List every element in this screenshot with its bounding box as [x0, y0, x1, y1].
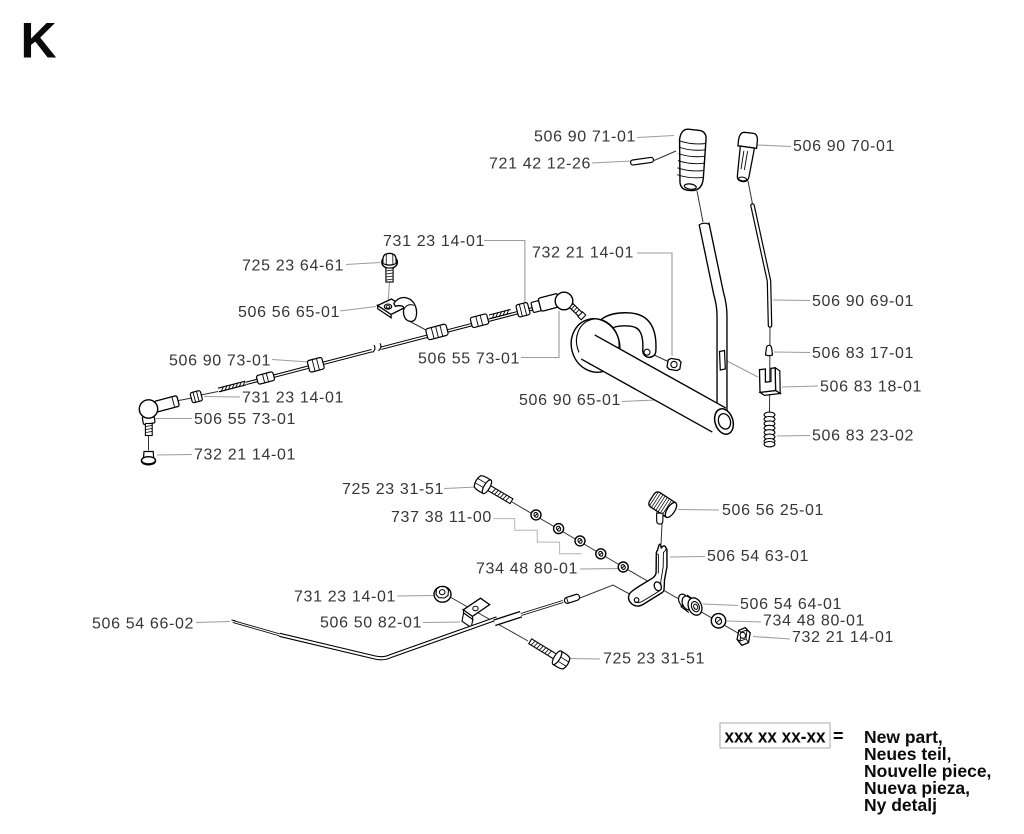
svg-text:725 23 31-51: 725 23 31-51 — [603, 651, 705, 668]
svg-text:xxx xx xx-xx: xxx xx xx-xx — [725, 727, 826, 747]
svg-text:731 23 14-01: 731 23 14-01 — [242, 390, 344, 407]
svg-text:725 23 64-61: 725 23 64-61 — [242, 258, 344, 275]
svg-text:506 55 73-01: 506 55 73-01 — [194, 411, 296, 428]
svg-text:732 21 14-01: 732 21 14-01 — [532, 245, 634, 262]
svg-text:506 90 69-01: 506 90 69-01 — [812, 293, 914, 310]
svg-text:721 42 12-26: 721 42 12-26 — [489, 156, 591, 173]
svg-text:506 54 64-01: 506 54 64-01 — [740, 596, 842, 613]
svg-text:506 90 65-01: 506 90 65-01 — [519, 392, 621, 409]
svg-text:731 23 14-01: 731 23 14-01 — [294, 589, 396, 606]
svg-text:506 90 70-01: 506 90 70-01 — [793, 138, 895, 155]
svg-text:506 54 63-01: 506 54 63-01 — [707, 548, 809, 565]
svg-text:506 83 18-01: 506 83 18-01 — [820, 379, 922, 396]
svg-text:506 90 71-01: 506 90 71-01 — [534, 129, 636, 146]
svg-text:506 56 25-01: 506 56 25-01 — [722, 502, 824, 519]
svg-text:=: = — [833, 726, 844, 746]
svg-text:506 56 65-01: 506 56 65-01 — [238, 304, 340, 321]
svg-text:737 38 11-00: 737 38 11-00 — [391, 509, 492, 526]
svg-text:732 21 14-01: 732 21 14-01 — [792, 629, 894, 646]
svg-text:506 83 23-02: 506 83 23-02 — [812, 428, 914, 445]
svg-text:506 54 66-02: 506 54 66-02 — [92, 616, 194, 633]
svg-text:506 55 73-01: 506 55 73-01 — [418, 351, 520, 368]
svg-text:734 48 80-01: 734 48 80-01 — [763, 613, 865, 630]
svg-text:731 23 14-01: 731 23 14-01 — [383, 233, 485, 250]
svg-text:K: K — [21, 13, 57, 69]
svg-text:725 23 31-51: 725 23 31-51 — [342, 481, 444, 498]
svg-text:734 48 80-01: 734 48 80-01 — [476, 561, 578, 578]
svg-text:Ny detalj: Ny detalj — [864, 795, 937, 815]
svg-text:506 83 17-01: 506 83 17-01 — [812, 345, 914, 362]
svg-text:506 50 82-01: 506 50 82-01 — [320, 615, 422, 632]
svg-text:732 21 14-01: 732 21 14-01 — [194, 447, 296, 464]
svg-text:506 90 73-01: 506 90 73-01 — [169, 353, 271, 370]
